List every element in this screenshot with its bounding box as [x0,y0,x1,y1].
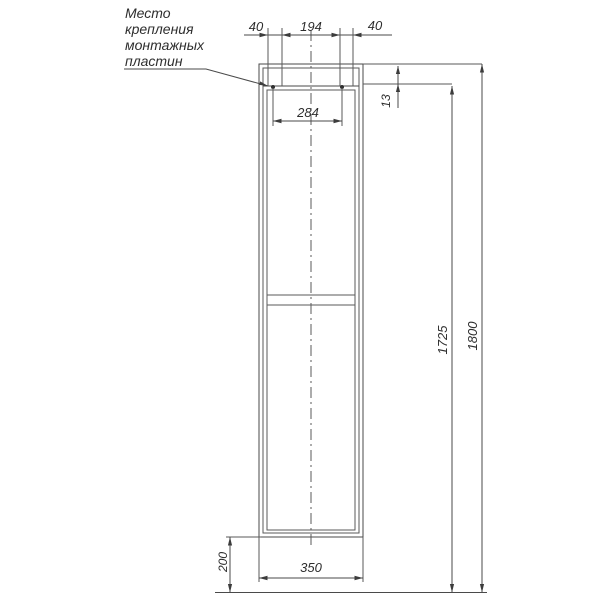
note-line-2: крепления [125,21,194,37]
height-dimensions: 1725 1800 [435,64,484,593]
arrowhead [273,119,282,123]
note-line-3: монтажных [125,37,205,53]
arrowhead [259,576,268,580]
dim-label-bottom-clearance: 200 [216,552,230,573]
dim-label-left-offset: 40 [249,19,264,34]
arrowhead [282,33,291,37]
arrowhead [480,64,484,73]
dim-label-plate-span: 284 [296,105,319,120]
mounting-note: Место крепления монтажных пластин [124,5,268,86]
note-line-1: Место [125,5,171,21]
arrowhead [396,66,400,74]
arrowhead [332,33,341,37]
technical-drawing-canvas: 40 194 40 284 13 1725 [0,0,600,600]
arrowhead [228,537,232,546]
dim-label-spacing: 194 [300,19,322,34]
bottom-clearance-dimension: 200 [216,537,261,593]
dim-label-mount-height: 1725 [435,325,450,355]
plate-span-dimension: 284 [273,88,342,126]
arrowhead [450,584,454,593]
arrowhead [228,584,232,593]
note-line-4: пластин [125,53,183,69]
cabinet-dimension-drawing: 40 194 40 284 13 1725 [0,0,600,600]
dim-label-total-height: 1800 [465,321,480,351]
arrowhead [480,584,484,593]
arrowhead [396,84,400,92]
top-dimension-chain: 40 194 40 [244,18,392,86]
leader-line [124,69,268,86]
dim-label-right-offset: 40 [368,18,383,33]
arrowhead [450,86,454,95]
plate-offset-dimension: 13 [363,64,482,108]
dim-label-width: 350 [300,560,322,575]
arrowhead [334,119,343,123]
leader-arrowhead [259,81,268,86]
arrowhead [353,33,362,37]
arrowhead [355,576,364,580]
dim-label-plate-offset: 13 [379,94,393,108]
